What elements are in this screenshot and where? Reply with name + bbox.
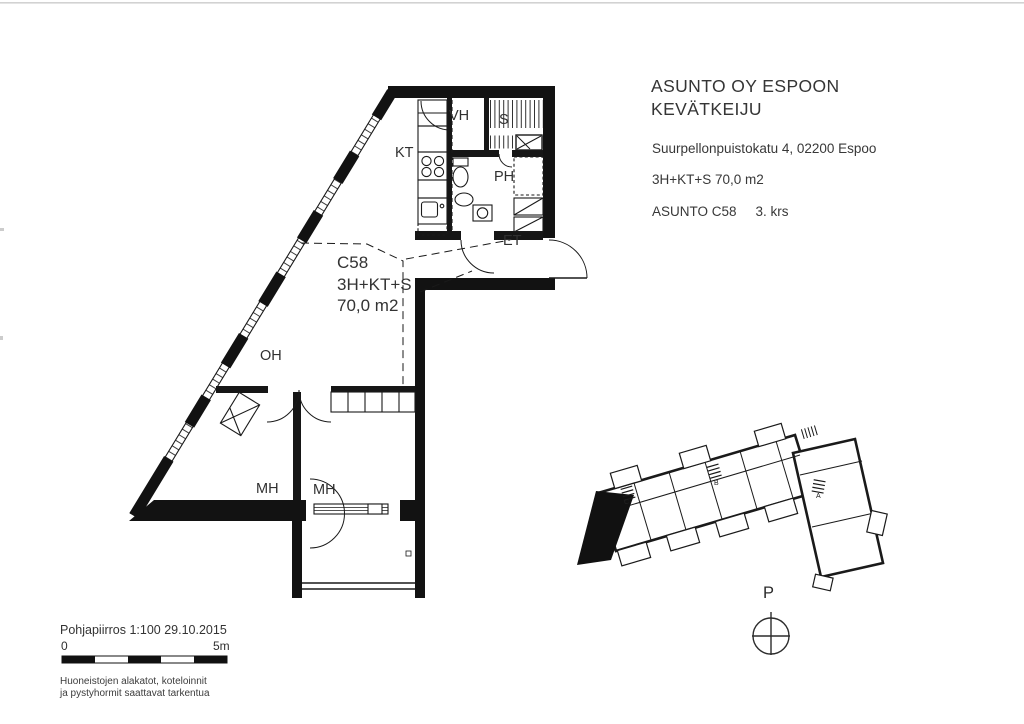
sauna-fixtures bbox=[490, 114, 543, 167]
address: Suurpellonpuistokatu 4, 02200 Espoo bbox=[652, 141, 876, 156]
room-label-bedroom-left: MH bbox=[256, 481, 279, 497]
room-label-sauna: S bbox=[499, 112, 509, 128]
apartment-type: 3H+KT+S 70,0 m2 bbox=[652, 172, 764, 187]
plan-apartment-label: C58 3H+KT+S 70,0 m2 bbox=[337, 252, 412, 317]
disclaimer-line1: Huoneistojen alakatot, koteloinnit bbox=[60, 676, 207, 687]
scale-zero-label: 0 bbox=[61, 639, 68, 653]
plan-type: 3H+KT+S bbox=[337, 274, 412, 296]
room-label-hall: ET bbox=[503, 233, 522, 249]
stairwell-label-c: C bbox=[624, 499, 629, 506]
unit-number: ASUNTO C58 bbox=[652, 204, 737, 219]
compass-icon bbox=[752, 612, 790, 655]
scale-bar bbox=[62, 656, 227, 663]
room-label-bedroom-center: MH bbox=[313, 482, 336, 498]
room-label-livingroom: OH bbox=[260, 348, 282, 364]
stairwell-label-a: A bbox=[816, 493, 821, 500]
floor-number: 3. krs bbox=[756, 204, 789, 219]
site-plan bbox=[577, 423, 887, 590]
floor-plan-document: ASUNTO OY ESPOON KEVÄTKEIJU Suurpellonpu… bbox=[0, 0, 1024, 724]
company-name-line2: KEVÄTKEIJU bbox=[651, 99, 762, 120]
room-label-bathroom: PH bbox=[494, 169, 514, 185]
kitchen-fixtures bbox=[418, 100, 452, 235]
north-label: P bbox=[763, 584, 774, 603]
drawing-title: Pohjapiirros 1:100 29.10.2015 bbox=[60, 623, 227, 637]
plan-unit: C58 bbox=[337, 252, 412, 274]
room-label-kitchen: KT bbox=[395, 145, 414, 161]
plan-area: 70,0 m2 bbox=[337, 295, 412, 317]
scale-max-label: 5m bbox=[213, 639, 230, 653]
drawing-canvas bbox=[0, 0, 1024, 724]
room-label-vh: VH bbox=[449, 108, 469, 124]
closets bbox=[220, 392, 415, 436]
unit-and-floor: ASUNTO C58 3. krs bbox=[652, 204, 789, 219]
disclaimer-line2: ja pystyhormit saattavat tarkentua bbox=[60, 688, 210, 699]
company-name-line1: ASUNTO OY ESPOON bbox=[651, 76, 840, 97]
apartment-plan bbox=[129, 86, 587, 598]
stairwell-label-b: B bbox=[714, 480, 719, 487]
